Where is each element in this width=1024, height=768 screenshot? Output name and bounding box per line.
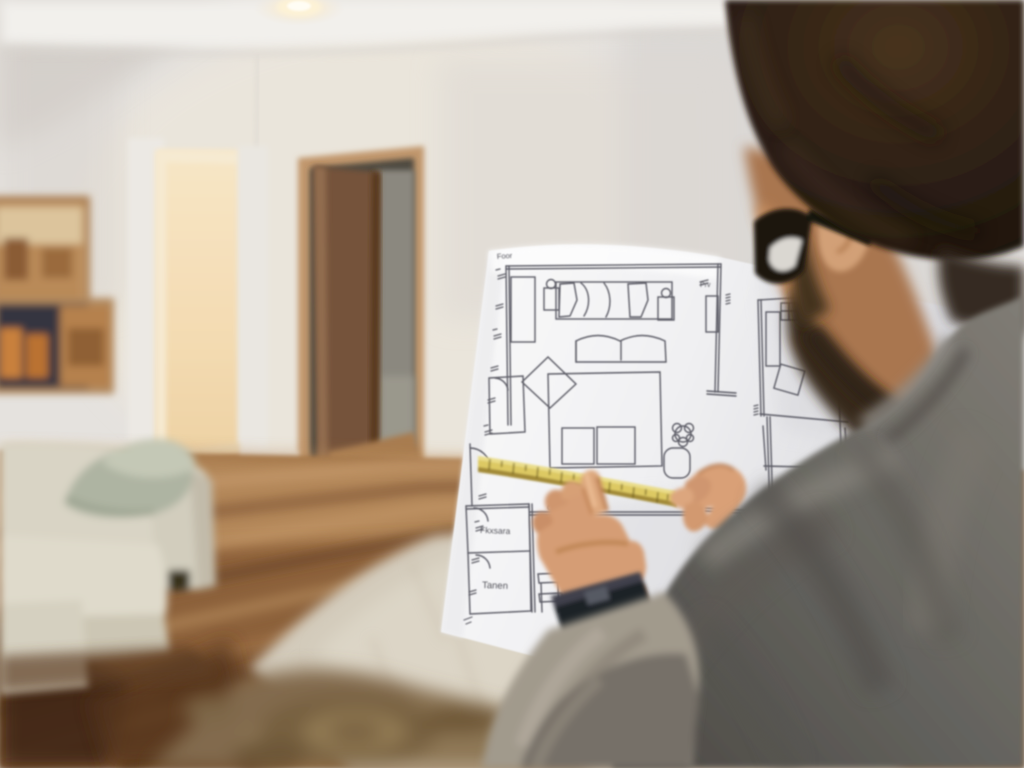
svg-text:Prv: Prv — [700, 282, 711, 289]
svg-text:Foor: Foor — [497, 251, 514, 261]
svg-text:Tanen: Tanen — [482, 580, 508, 592]
svg-text:Fkxsara: Fkxsara — [480, 525, 511, 536]
